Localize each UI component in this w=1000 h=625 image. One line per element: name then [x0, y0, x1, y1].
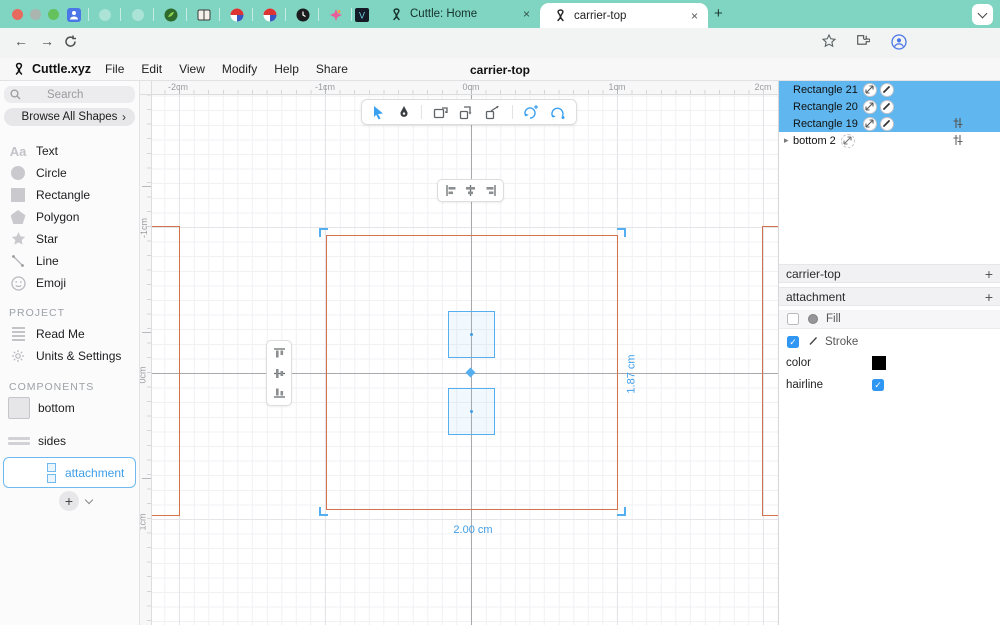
svg-text:V: V [358, 10, 364, 20]
browser-tab-strip: V Cuttle: Home × carrier-top × + [0, 0, 1000, 28]
modifier-icon[interactable] [952, 134, 964, 149]
shape-label: Circle [36, 166, 67, 180]
selection-height-label: 1.87 cm [626, 354, 638, 393]
stroke-badge-icon[interactable] [880, 100, 894, 114]
add-component-chevron-icon[interactable] [86, 497, 92, 503]
browser-tab-carrier-top[interactable]: carrier-top × [540, 3, 708, 28]
color-label: color [786, 357, 811, 369]
menu-file[interactable]: File [105, 62, 124, 76]
layer-name: Rectangle 20 [793, 101, 858, 113]
window-minimize-button[interactable] [30, 9, 41, 20]
selection-bracket-icon [617, 228, 626, 237]
stroke-checkbox[interactable]: ✓ [787, 336, 799, 348]
component-item-bottom[interactable]: bottom [0, 395, 140, 421]
hairline-checkbox[interactable]: ✓ [872, 379, 884, 391]
shape-label: Polygon [36, 210, 79, 224]
pinned-tab-separator [318, 8, 319, 21]
right-panel: Rectangle 21 Rectangle 20 Rectangle 19 ▸… [778, 81, 1000, 625]
select-tool-icon[interactable] [372, 105, 386, 120]
gear-icon [8, 349, 28, 363]
shape-item-line[interactable]: Line [0, 250, 140, 272]
pinned-tab-ghost-icon[interactable] [130, 7, 145, 22]
ruler-label: -2cm [168, 82, 188, 92]
color-row: color [779, 353, 1000, 373]
ruler-corner [140, 81, 152, 95]
add-icon[interactable]: + [985, 289, 993, 305]
back-icon[interactable]: ← [14, 33, 28, 49]
layer-name: Rectangle 21 [793, 84, 858, 96]
tab-title: carrier-top [574, 10, 626, 22]
star-icon [8, 232, 28, 246]
ruler-label: 1cm [140, 513, 148, 530]
window-close-button[interactable] [12, 9, 23, 20]
tab-close-icon[interactable]: × [523, 7, 530, 21]
brand-label[interactable]: Cuttle.xyz [32, 62, 91, 76]
pinned-tab-book-icon[interactable] [196, 7, 211, 22]
polygon-icon [8, 210, 28, 224]
pinned-tab-ghost-icon[interactable] [97, 7, 112, 22]
fill-row: Fill [779, 310, 1000, 329]
pinned-tab-separator [219, 8, 220, 21]
document-title: carrier-top [430, 63, 570, 77]
stroke-badge-icon[interactable] [880, 117, 894, 131]
component-label: attachment [65, 466, 124, 480]
align-horizontal-popup [437, 179, 504, 202]
shape-center-dot [470, 333, 473, 336]
document-icon [8, 327, 28, 341]
component-label: bottom [38, 401, 75, 415]
modifier-icon[interactable] [952, 117, 964, 132]
stroke-glyph-icon [808, 336, 818, 349]
shape-outline-right[interactable] [762, 226, 778, 516]
layer-row-rectangle-21[interactable]: Rectangle 21 [779, 81, 1000, 98]
shape-item-polygon[interactable]: Polygon [0, 206, 140, 228]
tab-search-button[interactable] [972, 4, 993, 25]
align-vertical-popup [266, 340, 292, 406]
bring-forward-icon[interactable] [485, 105, 501, 120]
section-title: carrier-top [786, 267, 841, 281]
disclosure-triangle-icon[interactable]: ▸ [784, 135, 793, 146]
line-icon [8, 254, 28, 268]
pinned-tab-separator [351, 8, 352, 21]
pinned-tab-plant-icon[interactable] [163, 7, 178, 22]
ruler-top: -2cm -1cm 0cm 1cm 2cm [140, 81, 778, 95]
sidebar-item-units-settings[interactable]: Units & Settings [0, 345, 140, 367]
section-header-carrier-top[interactable]: carrier-top + [779, 264, 1000, 283]
selection-bracket-icon [319, 507, 328, 516]
bookmark-star-icon[interactable] [822, 34, 836, 51]
cuttle-favicon [554, 9, 567, 22]
profile-icon[interactable] [891, 34, 907, 53]
send-backward-icon[interactable] [459, 105, 475, 120]
shape-label: Text [36, 144, 58, 158]
ruler-label: -1cm [315, 82, 335, 92]
selection-width-label: 2.00 cm [451, 524, 495, 536]
menu-share[interactable]: Share [316, 62, 348, 76]
shape-item-circle[interactable]: Circle [0, 162, 140, 184]
selection-bracket-icon [319, 228, 328, 237]
pinned-tab-paw-icon[interactable] [229, 7, 244, 22]
transform-badge-icon[interactable] [863, 117, 877, 131]
search-placeholder: Search [47, 89, 83, 101]
align-bottom-icon[interactable] [273, 386, 286, 399]
layer-row-rectangle-19[interactable]: Rectangle 19 [779, 115, 1000, 132]
search-input[interactable]: Search [4, 86, 135, 103]
rotate-modifier-icon[interactable] [550, 105, 566, 120]
menu-edit[interactable]: Edit [141, 62, 162, 76]
pinned-tab-separator [153, 8, 154, 21]
shape-outline-left[interactable] [148, 226, 180, 516]
pinned-tab-separator [285, 8, 286, 21]
extensions-icon[interactable] [856, 34, 870, 51]
component-label: sides [38, 434, 66, 448]
layer-name: bottom 2 [793, 135, 836, 147]
ruler-label: 2cm [754, 82, 771, 92]
left-sidebar: Search Browse All Shapes › Aa Text Circl… [0, 81, 140, 625]
component-thumbnail [47, 463, 56, 483]
component-thumbnail [8, 397, 30, 419]
ruler-label: -1cm [140, 218, 149, 238]
shape-item-star[interactable]: Star [0, 228, 140, 250]
add-component-button[interactable]: + [59, 491, 79, 511]
ruler-left: -1cm 0cm 1cm [140, 95, 152, 625]
layer-row-rectangle-20[interactable]: Rectangle 20 [779, 98, 1000, 115]
fill-label: Fill [826, 313, 841, 325]
forward-icon[interactable]: → [40, 33, 54, 49]
component-item-sides[interactable]: sides [0, 431, 140, 451]
shape-center-dot [470, 410, 473, 413]
window-zoom-button[interactable] [48, 9, 59, 20]
chevron-down-icon [978, 8, 988, 18]
pinned-tab-separator [186, 8, 187, 21]
ruler-label: 0cm [462, 82, 479, 92]
sidebar-item-label: Units & Settings [36, 349, 121, 363]
menu-modify[interactable]: Modify [222, 62, 257, 76]
new-tab-button[interactable]: + [714, 5, 723, 22]
stroke-badge-icon[interactable] [880, 83, 894, 97]
cuttle-favicon [390, 8, 403, 21]
align-left-icon[interactable] [445, 184, 458, 197]
browser-tab-home[interactable]: Cuttle: Home × [378, 0, 540, 28]
project-section-header: PROJECT [9, 307, 65, 319]
tab-title: Cuttle: Home [410, 8, 477, 20]
transform-badge-icon[interactable] [841, 134, 855, 148]
sidebar-item-read-me[interactable]: Read Me [0, 323, 140, 345]
canvas-toolbar [361, 99, 577, 125]
sidebar-item-label: Read Me [36, 327, 85, 341]
text-icon: Aa [8, 144, 28, 159]
align-middle-vertical-icon[interactable] [273, 367, 286, 380]
toolbar-divider [512, 105, 513, 119]
selection-bracket-icon [617, 507, 626, 516]
circle-icon [8, 166, 28, 180]
emoji-icon [8, 276, 28, 291]
pinned-tab-v-icon[interactable]: V [354, 7, 369, 22]
ruler-label: 0cm [140, 366, 148, 383]
section-header-attachment[interactable]: attachment + [779, 287, 1000, 306]
section-title: attachment [786, 290, 845, 304]
menu-view[interactable]: View [179, 62, 205, 76]
transform-badge-icon[interactable] [863, 100, 877, 114]
align-center-horizontal-icon[interactable] [464, 184, 477, 197]
pinned-tab-separator [252, 8, 253, 21]
shape-item-text[interactable]: Aa Text [0, 140, 140, 162]
pen-tool-icon[interactable] [397, 105, 411, 120]
stroke-label: Stroke [825, 336, 858, 348]
add-icon[interactable]: + [985, 266, 993, 282]
fill-checkbox[interactable] [787, 313, 799, 325]
cuttle-logo [12, 62, 26, 76]
layer-row-bottom-2[interactable]: ▸ bottom 2 [779, 132, 1000, 149]
search-icon [10, 89, 21, 100]
shape-label: Emoji [36, 276, 66, 290]
menu-help[interactable]: Help [274, 62, 299, 76]
component-thumbnail [8, 437, 30, 445]
browse-all-shapes-label: Browse All Shapes [22, 111, 118, 123]
pinned-tab-separator [88, 8, 89, 21]
component-item-attachment[interactable]: attachment [3, 457, 136, 488]
shape-label: Rectangle [36, 188, 90, 202]
shape-item-emoji[interactable]: Emoji [0, 272, 140, 294]
send-to-back-icon[interactable] [433, 105, 449, 120]
ruler-label: 1cm [608, 82, 625, 92]
shape-item-rectangle[interactable]: Rectangle [0, 184, 140, 206]
chevron-right-icon: › [122, 110, 126, 124]
pinned-tab-separator [120, 8, 121, 21]
shape-label: Star [36, 232, 58, 246]
browser-toolbar: ← → cuttle.xyz/@keremdiren/carrier-top-R… [0, 28, 1000, 58]
fill-swatch-icon[interactable] [808, 314, 818, 324]
hairline-row: hairline ✓ [779, 376, 1000, 394]
layer-name: Rectangle 19 [793, 118, 858, 130]
pinned-tab-paw-icon[interactable] [262, 7, 277, 22]
tab-close-icon[interactable]: × [691, 9, 698, 23]
components-section-header: COMPONENTS [9, 381, 94, 393]
toolbar-divider [421, 105, 422, 119]
rectangle-icon [8, 188, 28, 202]
stroke-color-swatch[interactable] [872, 356, 886, 370]
repeat-modifier-icon[interactable] [523, 105, 539, 120]
align-right-icon[interactable] [484, 184, 497, 197]
align-top-icon[interactable] [273, 347, 286, 360]
hairline-label: hairline [786, 379, 823, 391]
reload-icon[interactable] [64, 35, 77, 51]
pinned-tab-profile-icon[interactable] [66, 7, 81, 22]
pinned-tab-clock-icon[interactable] [295, 7, 310, 22]
shape-label: Line [36, 254, 59, 268]
stroke-row: ✓ Stroke [779, 333, 1000, 351]
transform-badge-icon[interactable] [863, 83, 877, 97]
design-canvas[interactable]: 2.00 cm 1.87 cm -2cm -1cm 0cm 1cm 2cm -1… [140, 81, 778, 625]
browse-all-shapes-button[interactable]: Browse All Shapes › [4, 108, 135, 126]
pinned-tab-spark-icon[interactable] [328, 7, 343, 22]
